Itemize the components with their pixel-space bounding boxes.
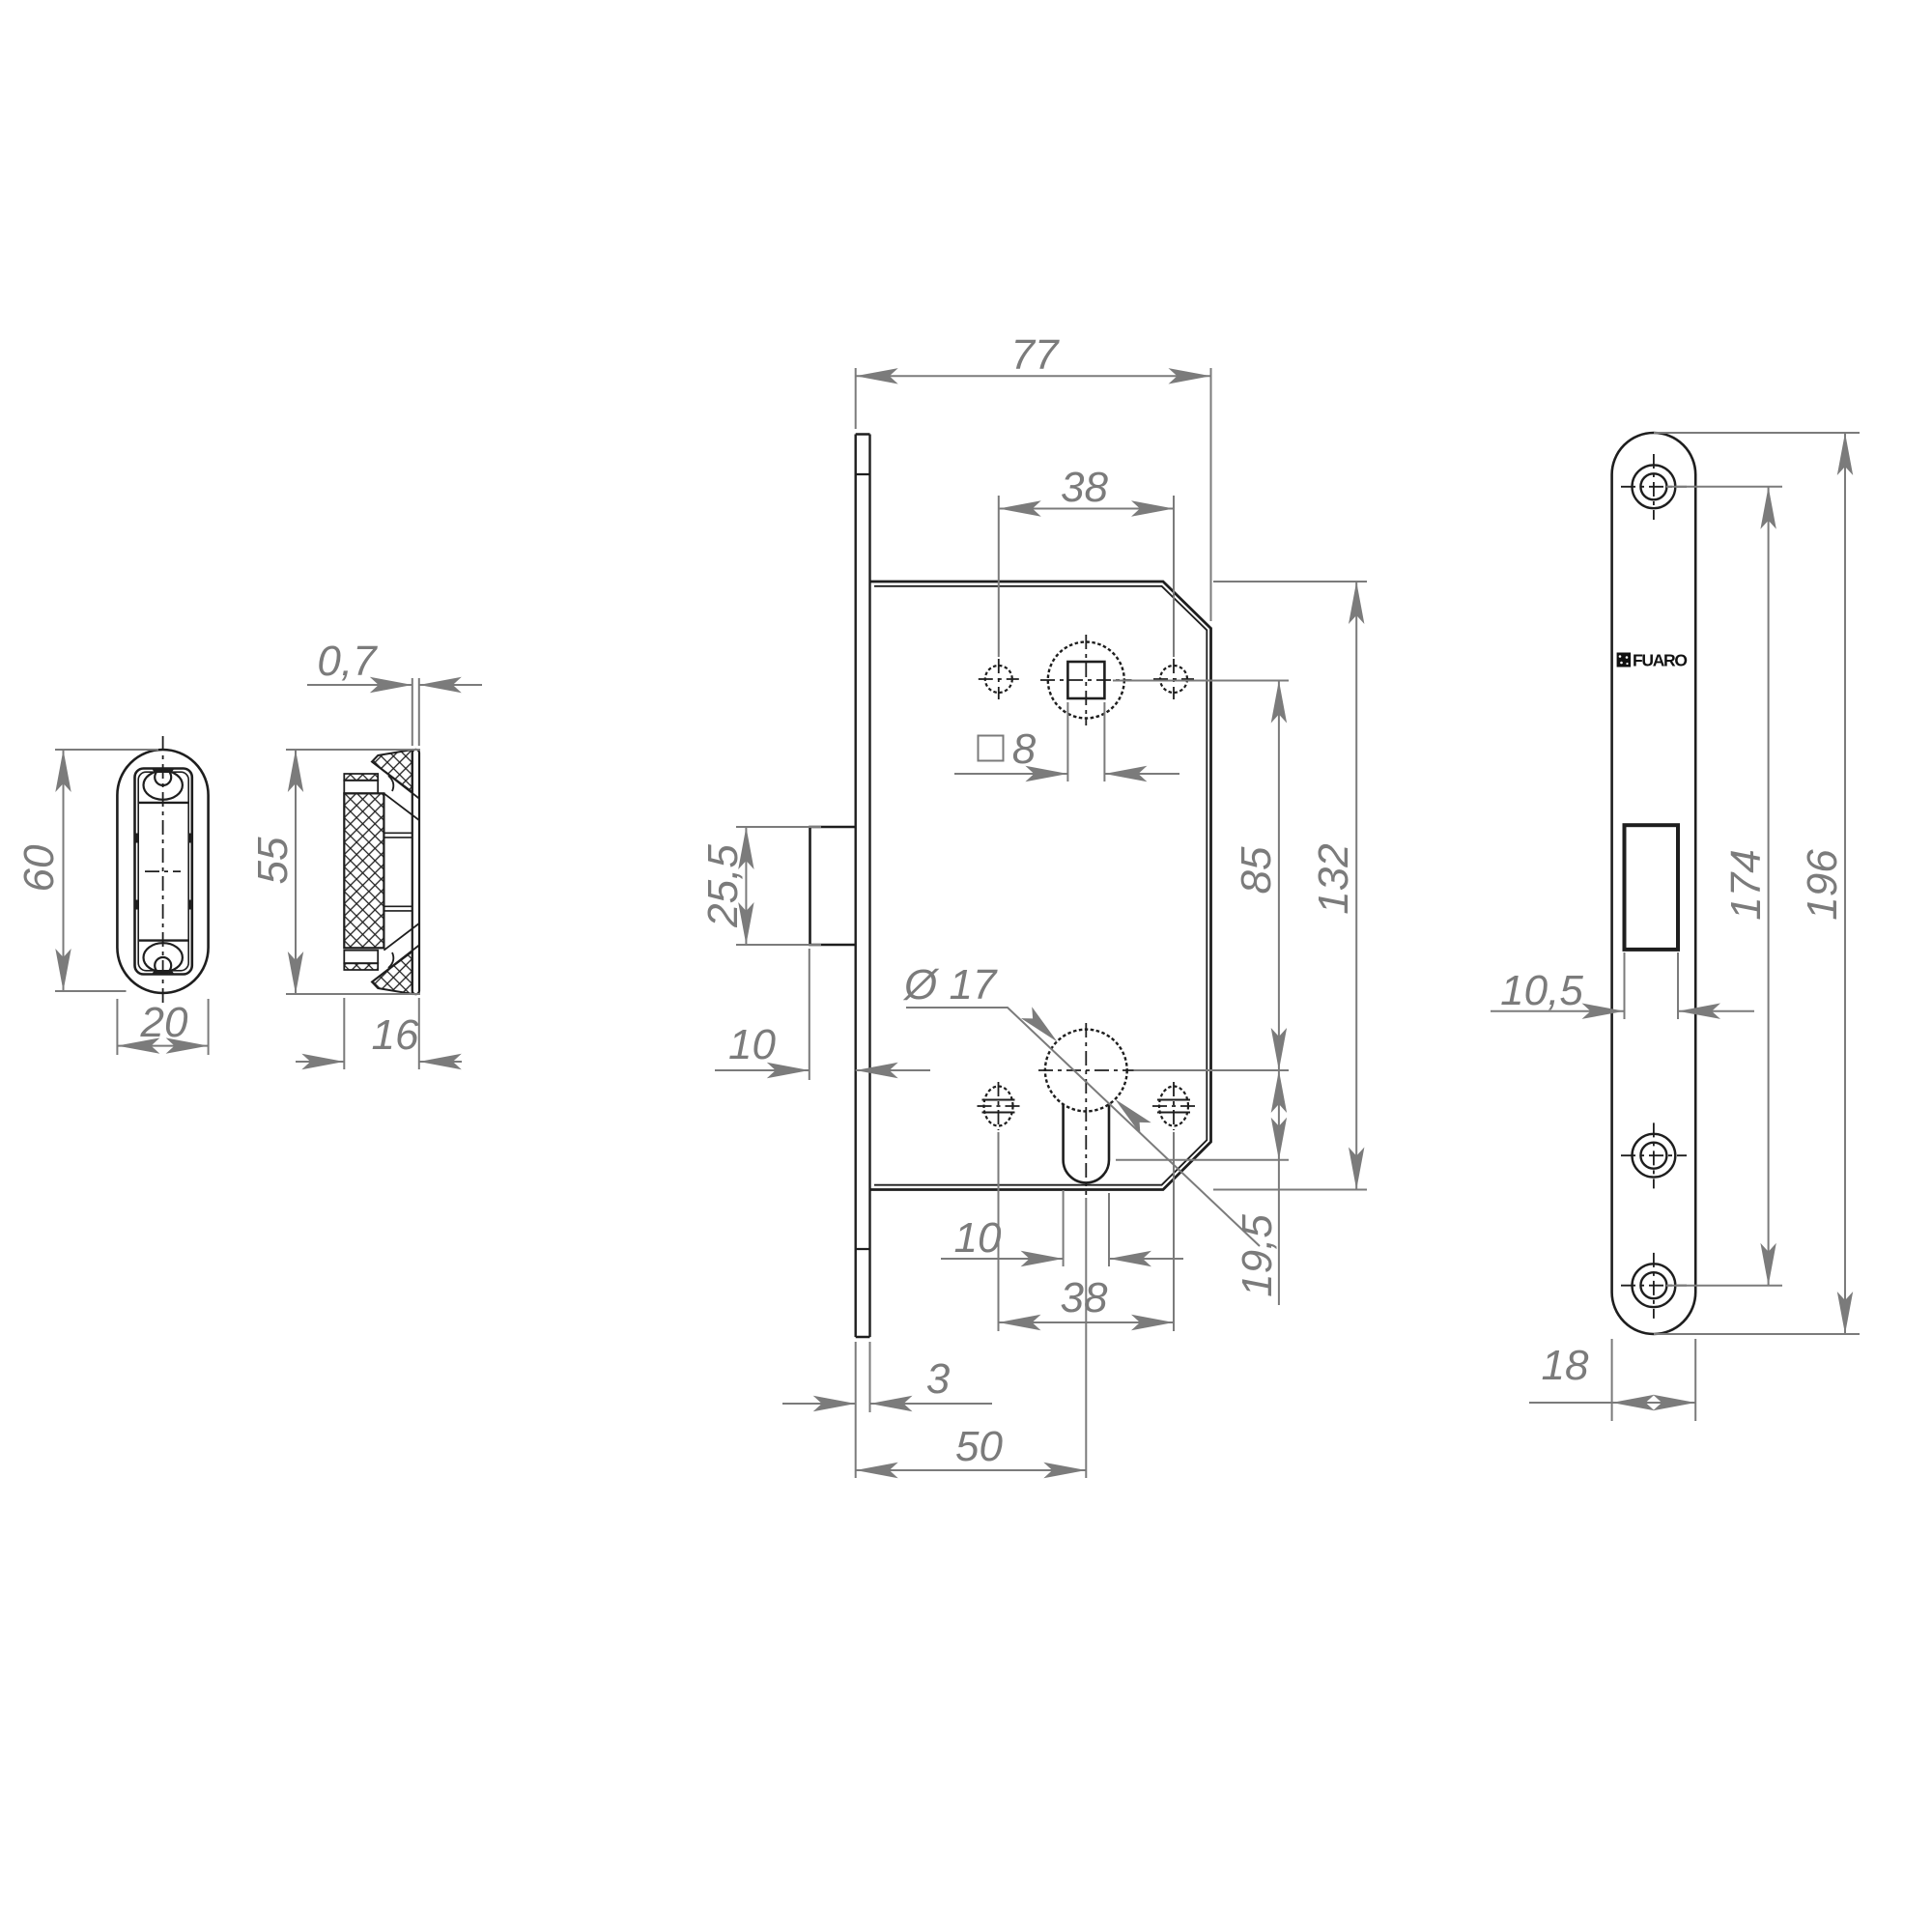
svg-text:3: 3	[926, 1355, 951, 1403]
svg-text:18: 18	[1542, 1342, 1589, 1389]
svg-text:55: 55	[249, 837, 297, 884]
svg-text:25,5: 25,5	[699, 844, 747, 928]
svg-text:38: 38	[1061, 1274, 1108, 1321]
svg-text:FUARO: FUARO	[1633, 651, 1688, 670]
svg-text:Ø 17: Ø 17	[902, 961, 998, 1009]
svg-text:19,5: 19,5	[1234, 1214, 1281, 1297]
svg-text:38: 38	[1061, 464, 1108, 511]
svg-text:20: 20	[140, 999, 188, 1046]
svg-text:50: 50	[955, 1423, 1003, 1470]
svg-text:10: 10	[728, 1021, 776, 1068]
svg-text:8: 8	[1012, 725, 1037, 773]
svg-text:174: 174	[1722, 849, 1770, 920]
svg-text:10,5: 10,5	[1500, 967, 1583, 1014]
svg-text:196: 196	[1799, 849, 1846, 921]
svg-text:16: 16	[372, 1011, 419, 1059]
svg-text:85: 85	[1233, 846, 1280, 894]
svg-text:10: 10	[954, 1214, 1002, 1262]
svg-text:77: 77	[1011, 331, 1060, 379]
svg-text:60: 60	[15, 844, 63, 892]
svg-text:0,7: 0,7	[317, 638, 378, 685]
svg-text:132: 132	[1310, 843, 1357, 914]
